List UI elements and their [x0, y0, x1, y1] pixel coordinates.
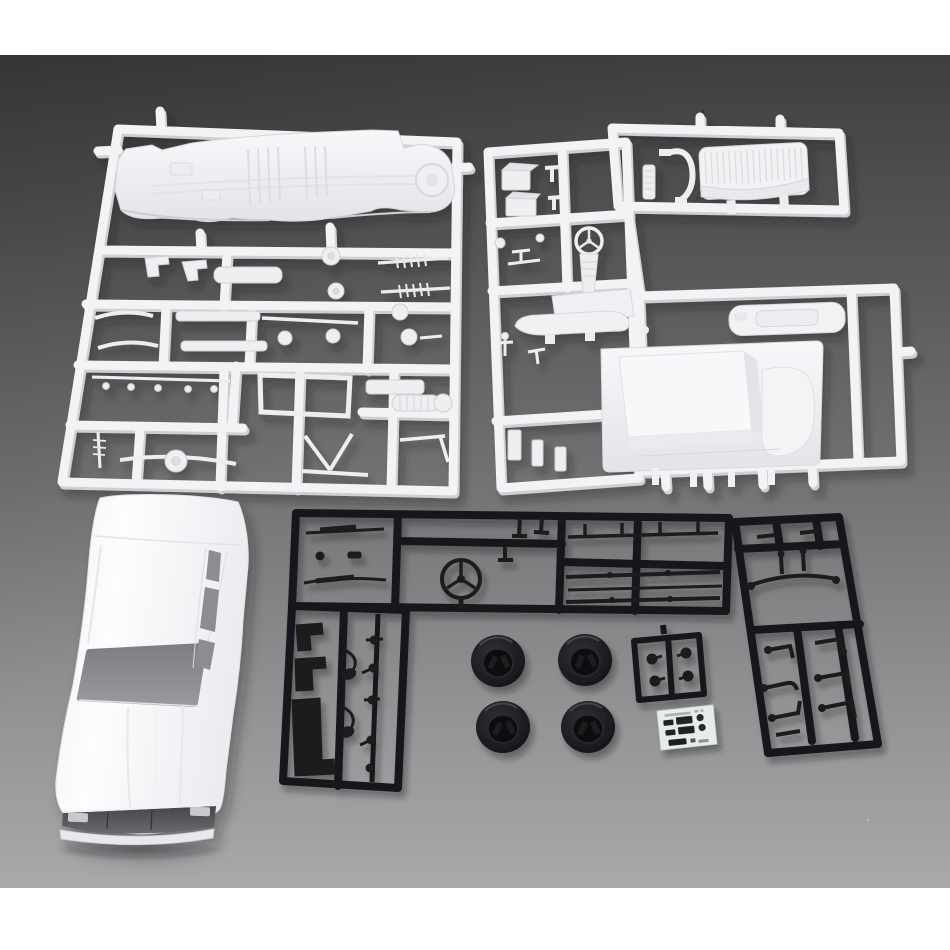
dust-speck	[867, 819, 869, 821]
tire	[471, 635, 525, 687]
windshield-opening	[77, 643, 207, 707]
model-kit-photo	[0, 0, 950, 950]
rear-shelf-part	[729, 302, 846, 336]
tire	[476, 701, 530, 753]
tire	[558, 634, 612, 686]
interior-tub-part	[601, 341, 823, 487]
photo-stage	[0, 0, 950, 950]
tire	[561, 701, 615, 753]
decal-sheet	[657, 705, 717, 750]
